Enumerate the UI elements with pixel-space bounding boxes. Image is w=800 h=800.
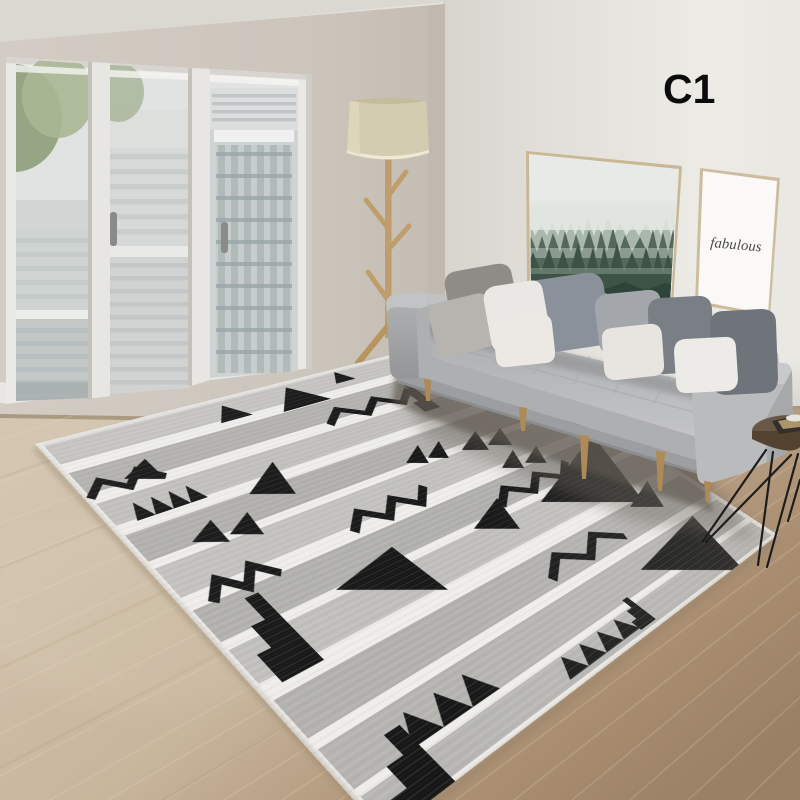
svg-text:C1: C1 [663, 66, 715, 112]
